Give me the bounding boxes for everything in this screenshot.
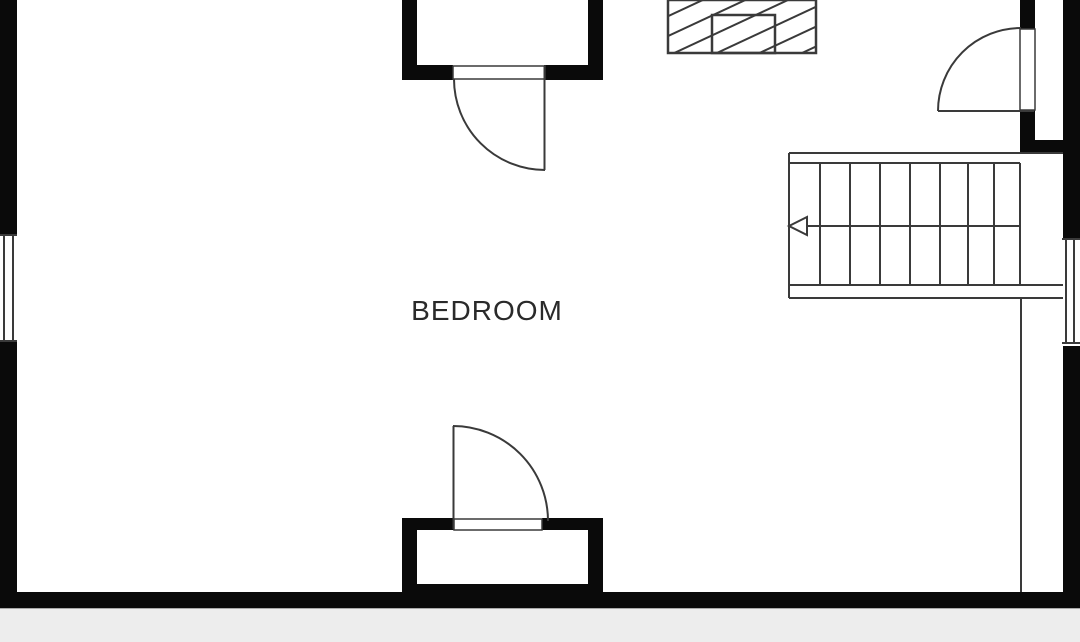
bottom-closet-door-opening xyxy=(454,519,542,530)
bottom-closet-door xyxy=(453,426,548,530)
bottom-closet-sill-left xyxy=(402,518,454,530)
right-wall-lower xyxy=(1063,346,1080,608)
entry-wall-below-door xyxy=(1020,110,1035,152)
bottom-closet-door-swing-arc xyxy=(453,426,548,521)
bottom-closet-sill-right xyxy=(542,518,603,530)
entry-door-opening xyxy=(1020,29,1035,110)
stair-direction-arrow-icon xyxy=(789,217,807,235)
chimney xyxy=(668,0,816,53)
bottom-closet-floor-wall xyxy=(402,584,603,608)
stair-treads xyxy=(820,163,994,285)
left-window-opening xyxy=(0,234,17,342)
floor-strip xyxy=(0,608,1080,642)
right-wall-window xyxy=(1062,238,1080,346)
room-label: BEDROOM xyxy=(357,294,617,328)
left-wall-window xyxy=(0,234,17,342)
left-wall-upper xyxy=(0,0,17,234)
entry-door xyxy=(938,28,1035,111)
floor-plan: BEDROOM xyxy=(0,0,1080,642)
staircase xyxy=(789,153,1063,298)
top-closet-door-opening xyxy=(453,66,545,79)
right-wall-upper xyxy=(1063,0,1080,238)
right-window-opening xyxy=(1062,238,1080,346)
top-closet-door xyxy=(453,66,545,170)
top-closet-sill-left xyxy=(402,65,453,80)
chimney-hatch xyxy=(668,0,816,53)
top-closet-sill-right xyxy=(544,65,603,80)
entry-door-swing-arc xyxy=(938,28,1021,111)
top-closet-door-swing-arc xyxy=(454,79,545,170)
entry-wall-above-door xyxy=(1020,0,1035,29)
entry-wall-connector xyxy=(1033,140,1063,152)
left-wall-lower xyxy=(0,342,17,608)
